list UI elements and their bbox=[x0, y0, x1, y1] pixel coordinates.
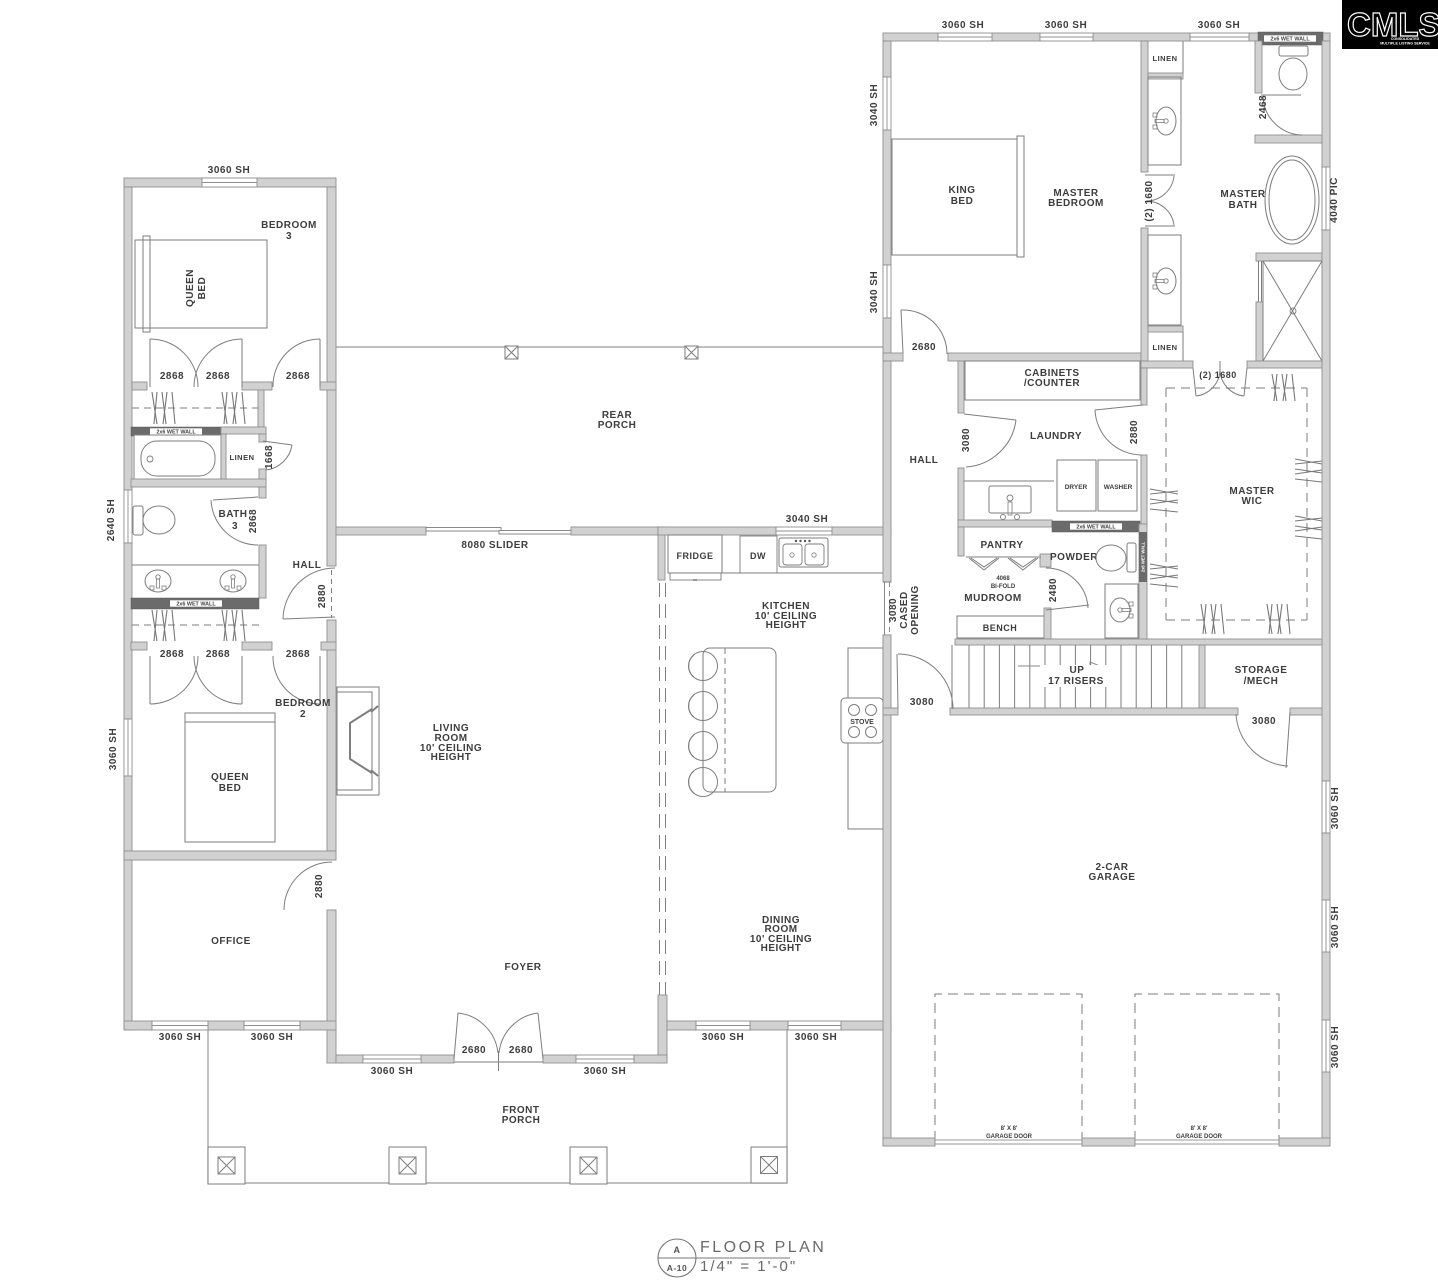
svg-text:3040 SH: 3040 SH bbox=[786, 514, 828, 525]
svg-text:DW: DW bbox=[750, 551, 766, 561]
svg-text:BED: BED bbox=[951, 196, 974, 207]
svg-text:8' X 8': 8' X 8' bbox=[1001, 1126, 1018, 1132]
svg-text:2868: 2868 bbox=[248, 509, 259, 533]
svg-text:BEDROOM: BEDROOM bbox=[1048, 198, 1104, 209]
svg-text:FOYER: FOYER bbox=[505, 962, 542, 973]
svg-text:BED: BED bbox=[197, 277, 208, 300]
svg-text:3060 SH: 3060 SH bbox=[702, 1032, 744, 1043]
svg-text:A-10: A-10 bbox=[667, 1263, 687, 1273]
svg-text:WIC: WIC bbox=[1242, 496, 1263, 507]
svg-text:LINEN: LINEN bbox=[1153, 343, 1178, 352]
svg-text:2868: 2868 bbox=[206, 649, 230, 660]
svg-text:2880: 2880 bbox=[314, 874, 325, 898]
svg-text:2868: 2868 bbox=[206, 371, 230, 382]
svg-text:2x6 WET WALL: 2x6 WET WALL bbox=[1270, 37, 1310, 43]
svg-text:2x6 WET WALL: 2x6 WET WALL bbox=[1076, 525, 1116, 531]
svg-text:LINEN: LINEN bbox=[1153, 54, 1178, 63]
svg-text:2868: 2868 bbox=[286, 371, 310, 382]
svg-text:WASHER: WASHER bbox=[1104, 484, 1133, 491]
svg-text:1/4" = 1'-0": 1/4" = 1'-0" bbox=[700, 1258, 797, 1275]
svg-text:3060 SH: 3060 SH bbox=[1330, 787, 1341, 829]
svg-text:BED: BED bbox=[219, 783, 242, 794]
svg-text:3080: 3080 bbox=[961, 428, 972, 452]
svg-text:8' X 8': 8' X 8' bbox=[1191, 1126, 1208, 1132]
svg-text:3080: 3080 bbox=[910, 697, 934, 708]
svg-text:OFFICE: OFFICE bbox=[211, 936, 251, 947]
svg-text:BATH: BATH bbox=[218, 509, 247, 520]
svg-text:1668: 1668 bbox=[264, 445, 275, 469]
svg-text:FRIDGE: FRIDGE bbox=[676, 551, 713, 561]
svg-text:BEDROOM: BEDROOM bbox=[275, 698, 331, 709]
svg-text:GARAGE DOOR: GARAGE DOOR bbox=[986, 1134, 1033, 1140]
svg-text:3060 SH: 3060 SH bbox=[371, 1066, 413, 1077]
svg-text:(2) 1680: (2) 1680 bbox=[1144, 180, 1155, 221]
svg-text:3060 SH: 3060 SH bbox=[584, 1066, 626, 1077]
svg-text:GARAGE DOOR: GARAGE DOOR bbox=[1176, 1134, 1223, 1140]
svg-text:2880: 2880 bbox=[317, 584, 328, 608]
svg-text:3: 3 bbox=[286, 231, 292, 242]
svg-text:2868: 2868 bbox=[160, 371, 184, 382]
svg-text:3060 SH: 3060 SH bbox=[251, 1032, 293, 1043]
svg-text:/MECH: /MECH bbox=[1244, 676, 1279, 687]
svg-text:CASED: CASED bbox=[899, 591, 910, 629]
svg-text:3060 SH: 3060 SH bbox=[1045, 20, 1087, 31]
svg-text:3080: 3080 bbox=[888, 598, 899, 622]
svg-text:GARAGE: GARAGE bbox=[1089, 872, 1136, 883]
svg-text:2: 2 bbox=[300, 709, 306, 720]
svg-text:QUEEN: QUEEN bbox=[211, 772, 249, 783]
svg-text:2x6 WET WALL: 2x6 WET WALL bbox=[176, 602, 216, 608]
svg-text:/COUNTER: /COUNTER bbox=[1024, 378, 1081, 389]
svg-text:PORCH: PORCH bbox=[598, 420, 637, 431]
svg-text:3060 SH: 3060 SH bbox=[1330, 1026, 1341, 1068]
svg-text:2680: 2680 bbox=[509, 1045, 533, 1056]
svg-text:HEIGHT: HEIGHT bbox=[766, 620, 807, 631]
svg-text:HALL: HALL bbox=[910, 455, 939, 466]
svg-text:2880: 2880 bbox=[1129, 420, 1140, 444]
svg-text:STOVE: STOVE bbox=[850, 719, 874, 726]
svg-text:3060 SH: 3060 SH bbox=[159, 1032, 201, 1043]
svg-text:MASTER: MASTER bbox=[1220, 189, 1266, 200]
svg-text:2468: 2468 bbox=[1258, 95, 1269, 119]
svg-text:LINEN: LINEN bbox=[230, 453, 255, 462]
svg-text:2680: 2680 bbox=[462, 1045, 486, 1056]
svg-text:8080 SLIDER: 8080 SLIDER bbox=[461, 540, 528, 551]
svg-text:BI-FOLD: BI-FOLD bbox=[991, 584, 1016, 590]
svg-text:DRYER: DRYER bbox=[1065, 484, 1088, 491]
svg-text:2868: 2868 bbox=[160, 649, 184, 660]
svg-text:BATH: BATH bbox=[1228, 200, 1257, 211]
svg-text:3060 SH: 3060 SH bbox=[1330, 906, 1341, 948]
svg-text:PORCH: PORCH bbox=[502, 1115, 541, 1126]
svg-text:17 RISERS: 17 RISERS bbox=[1048, 676, 1104, 687]
svg-text:4040 PIC: 4040 PIC bbox=[1329, 177, 1340, 223]
svg-text:3: 3 bbox=[232, 521, 238, 532]
svg-text:OPENING: OPENING bbox=[910, 585, 921, 635]
svg-text:4068: 4068 bbox=[996, 576, 1010, 582]
svg-text:3060 SH: 3060 SH bbox=[1198, 20, 1240, 31]
svg-text:(2) 1680: (2) 1680 bbox=[1199, 370, 1237, 380]
svg-text:UP: UP bbox=[1070, 665, 1085, 676]
svg-text:STORAGE: STORAGE bbox=[1235, 665, 1288, 676]
svg-text:PANTRY: PANTRY bbox=[981, 540, 1024, 551]
svg-text:3040 SH: 3040 SH bbox=[869, 271, 880, 313]
svg-text:HEIGHT: HEIGHT bbox=[761, 943, 802, 954]
svg-text:3080: 3080 bbox=[1252, 716, 1276, 727]
svg-text:MULTIPLE LISTING SERVICE: MULTIPLE LISTING SERVICE bbox=[1380, 42, 1430, 46]
svg-text:QUEEN: QUEEN bbox=[185, 269, 196, 307]
svg-text:2680: 2680 bbox=[912, 342, 936, 353]
svg-text:BENCH: BENCH bbox=[983, 623, 1018, 633]
svg-text:3060 SH: 3060 SH bbox=[208, 165, 250, 176]
svg-text:HEIGHT: HEIGHT bbox=[431, 752, 472, 763]
svg-text:3040 SH: 3040 SH bbox=[869, 84, 880, 126]
svg-text:POWDER: POWDER bbox=[1050, 552, 1098, 563]
svg-text:FLOOR PLAN: FLOOR PLAN bbox=[700, 1239, 826, 1256]
svg-text:BEDROOM: BEDROOM bbox=[261, 220, 317, 231]
svg-text:CONSOLIDATED: CONSOLIDATED bbox=[1391, 37, 1420, 41]
svg-text:A: A bbox=[674, 1245, 681, 1255]
svg-text:2868: 2868 bbox=[286, 649, 310, 660]
svg-text:2480: 2480 bbox=[1048, 578, 1059, 602]
svg-text:3060 SH: 3060 SH bbox=[108, 728, 119, 770]
svg-text:KING: KING bbox=[949, 185, 976, 196]
svg-text:MUDROOM: MUDROOM bbox=[964, 593, 1021, 604]
svg-text:HALL: HALL bbox=[293, 560, 322, 571]
svg-text:3060 SH: 3060 SH bbox=[942, 20, 984, 31]
svg-text:2x6 WET WALL: 2x6 WET WALL bbox=[1141, 541, 1146, 572]
svg-text:2640 SH: 2640 SH bbox=[106, 499, 117, 541]
svg-text:LAUNDRY: LAUNDRY bbox=[1030, 431, 1082, 442]
svg-text:3060 SH: 3060 SH bbox=[795, 1032, 837, 1043]
